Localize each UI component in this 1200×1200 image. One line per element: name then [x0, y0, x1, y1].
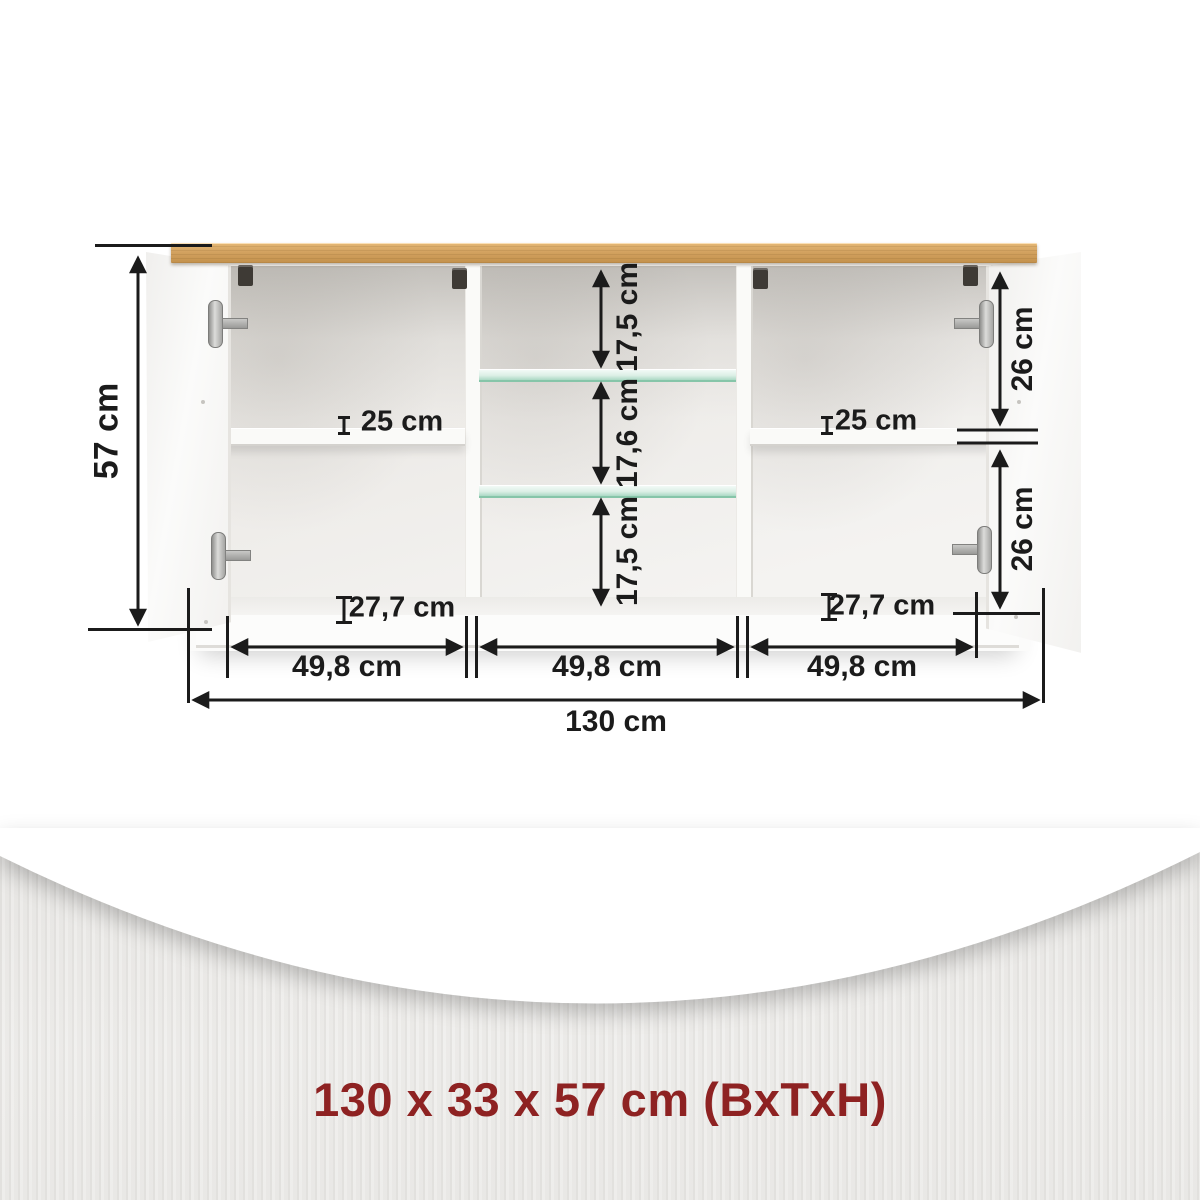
size-footer-text: 130 x 33 x 57 cm (BxTxH): [0, 1072, 1200, 1127]
dim-middle-top: 17,5 cm: [611, 262, 645, 372]
shadow-middle-section: [479, 266, 736, 597]
glass-shelf-lower: [479, 485, 736, 498]
dim-shelf-depth-left: 25 cm: [361, 406, 443, 439]
dim-middle-bottom: 17,5 cm: [611, 496, 645, 606]
top-hinge-plate: [753, 268, 768, 289]
hinge-icon: [211, 532, 253, 580]
product-dimension-page: 130 x 33 x 57 cm (BxTxH): [0, 0, 1200, 1200]
wood-top-panel: [171, 243, 1037, 263]
hinge-icon: [952, 300, 994, 348]
dim-shelf-depth-right: 25 cm: [835, 405, 917, 438]
top-hinge-plate: [238, 265, 253, 286]
hinge-icon: [208, 300, 250, 348]
footer-band: [0, 828, 1200, 1200]
dim-base-depth-left: 27,7 cm: [349, 592, 455, 625]
dim-width-right: 49,8 cm: [807, 650, 917, 684]
dim-right-bottom: 26 cm: [1006, 486, 1040, 571]
glass-shelf-upper: [479, 369, 736, 382]
dim-width-left: 49,8 cm: [292, 650, 402, 684]
top-hinge-plate: [452, 268, 467, 289]
top-hinge-plate: [963, 265, 978, 286]
dim-width-middle: 49,8 cm: [552, 650, 662, 684]
dim-base-depth-right: 27,7 cm: [829, 590, 935, 623]
dim-right-top: 26 cm: [1006, 306, 1040, 391]
curved-edge: [0, 828, 1200, 1200]
divider-left: [465, 266, 482, 615]
dim-middle-center: 17,6 cm: [611, 378, 645, 488]
hinge-icon: [950, 526, 992, 574]
dim-width-total: 130 cm: [565, 705, 667, 739]
dim-height-total: 57 cm: [88, 383, 127, 479]
